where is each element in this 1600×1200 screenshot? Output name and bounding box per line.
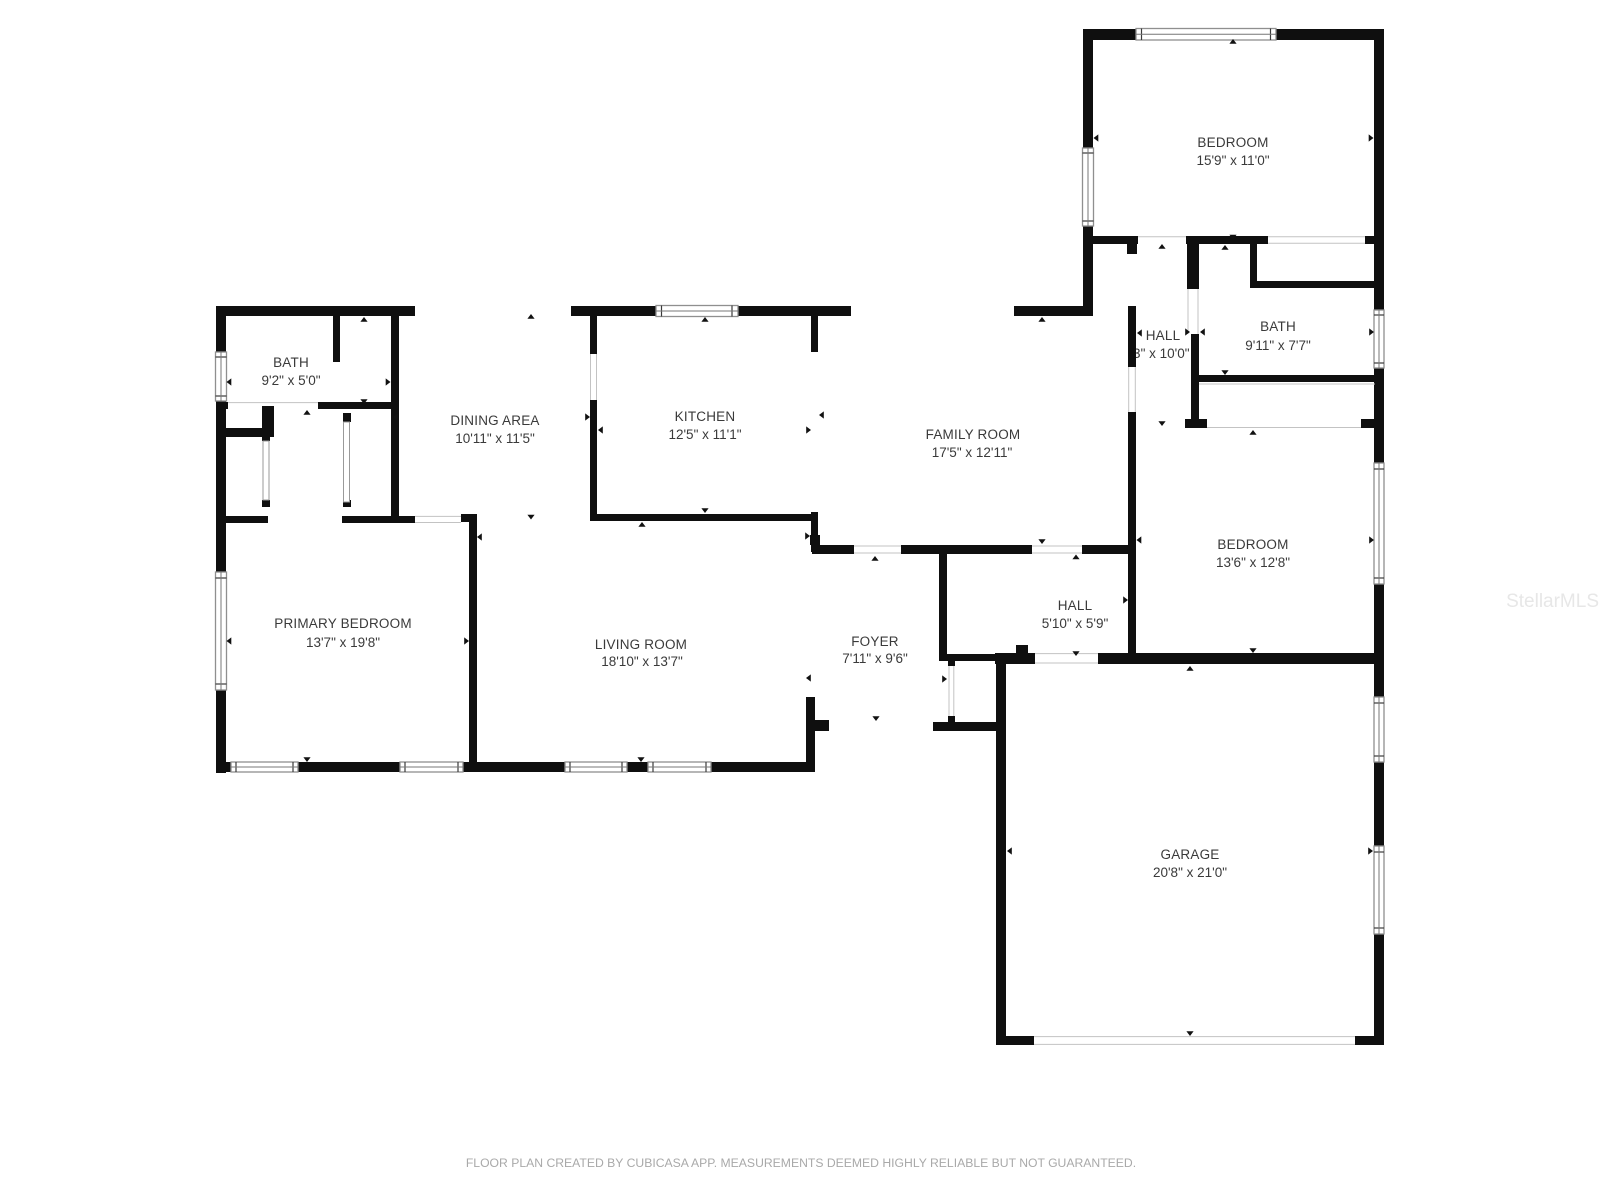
svg-text:HALL: HALL — [1146, 328, 1181, 343]
svg-text:BATH: BATH — [273, 355, 309, 370]
svg-text:17'5" x 12'11": 17'5" x 12'11" — [932, 445, 1013, 460]
svg-text:LIVING ROOM: LIVING ROOM — [595, 637, 687, 652]
svg-text:KITCHEN: KITCHEN — [675, 409, 736, 424]
svg-text:BATH: BATH — [1260, 319, 1296, 334]
svg-text:7'11" x 9'6": 7'11" x 9'6" — [842, 651, 908, 666]
svg-text:9'2" x 5'0": 9'2" x 5'0" — [261, 373, 320, 388]
svg-text:DINING AREA: DINING AREA — [450, 413, 539, 428]
svg-text:20'8" x 21'0": 20'8" x 21'0" — [1153, 865, 1227, 880]
svg-text:9'11" x 7'7": 9'11" x 7'7" — [1245, 338, 1311, 353]
svg-text:5'10" x 5'9": 5'10" x 5'9" — [1042, 616, 1109, 631]
svg-text:FOYER: FOYER — [851, 634, 899, 649]
svg-text:13'7" x 19'8": 13'7" x 19'8" — [306, 635, 380, 650]
svg-text:12'5" x 11'1": 12'5" x 11'1" — [668, 427, 741, 442]
svg-text:GARAGE: GARAGE — [1161, 847, 1220, 862]
svg-text:10'11" x 11'5": 10'11" x 11'5" — [455, 431, 535, 446]
svg-text:StellarMLS: StellarMLS — [1506, 591, 1599, 612]
svg-text:13'6" x 12'8": 13'6" x 12'8" — [1216, 555, 1290, 570]
svg-text:BEDROOM: BEDROOM — [1217, 537, 1288, 552]
svg-text:15'9" x 11'0": 15'9" x 11'0" — [1196, 153, 1269, 168]
svg-text:FAMILY ROOM: FAMILY ROOM — [926, 427, 1021, 442]
svg-text:HALL: HALL — [1058, 598, 1093, 613]
svg-text:BEDROOM: BEDROOM — [1197, 135, 1268, 150]
svg-text:PRIMARY BEDROOM: PRIMARY BEDROOM — [274, 616, 412, 631]
svg-text:FLOOR PLAN CREATED BY CUBICASA: FLOOR PLAN CREATED BY CUBICASA APP. MEAS… — [466, 1156, 1136, 1170]
svg-text:18'10" x 13'7": 18'10" x 13'7" — [601, 654, 683, 669]
